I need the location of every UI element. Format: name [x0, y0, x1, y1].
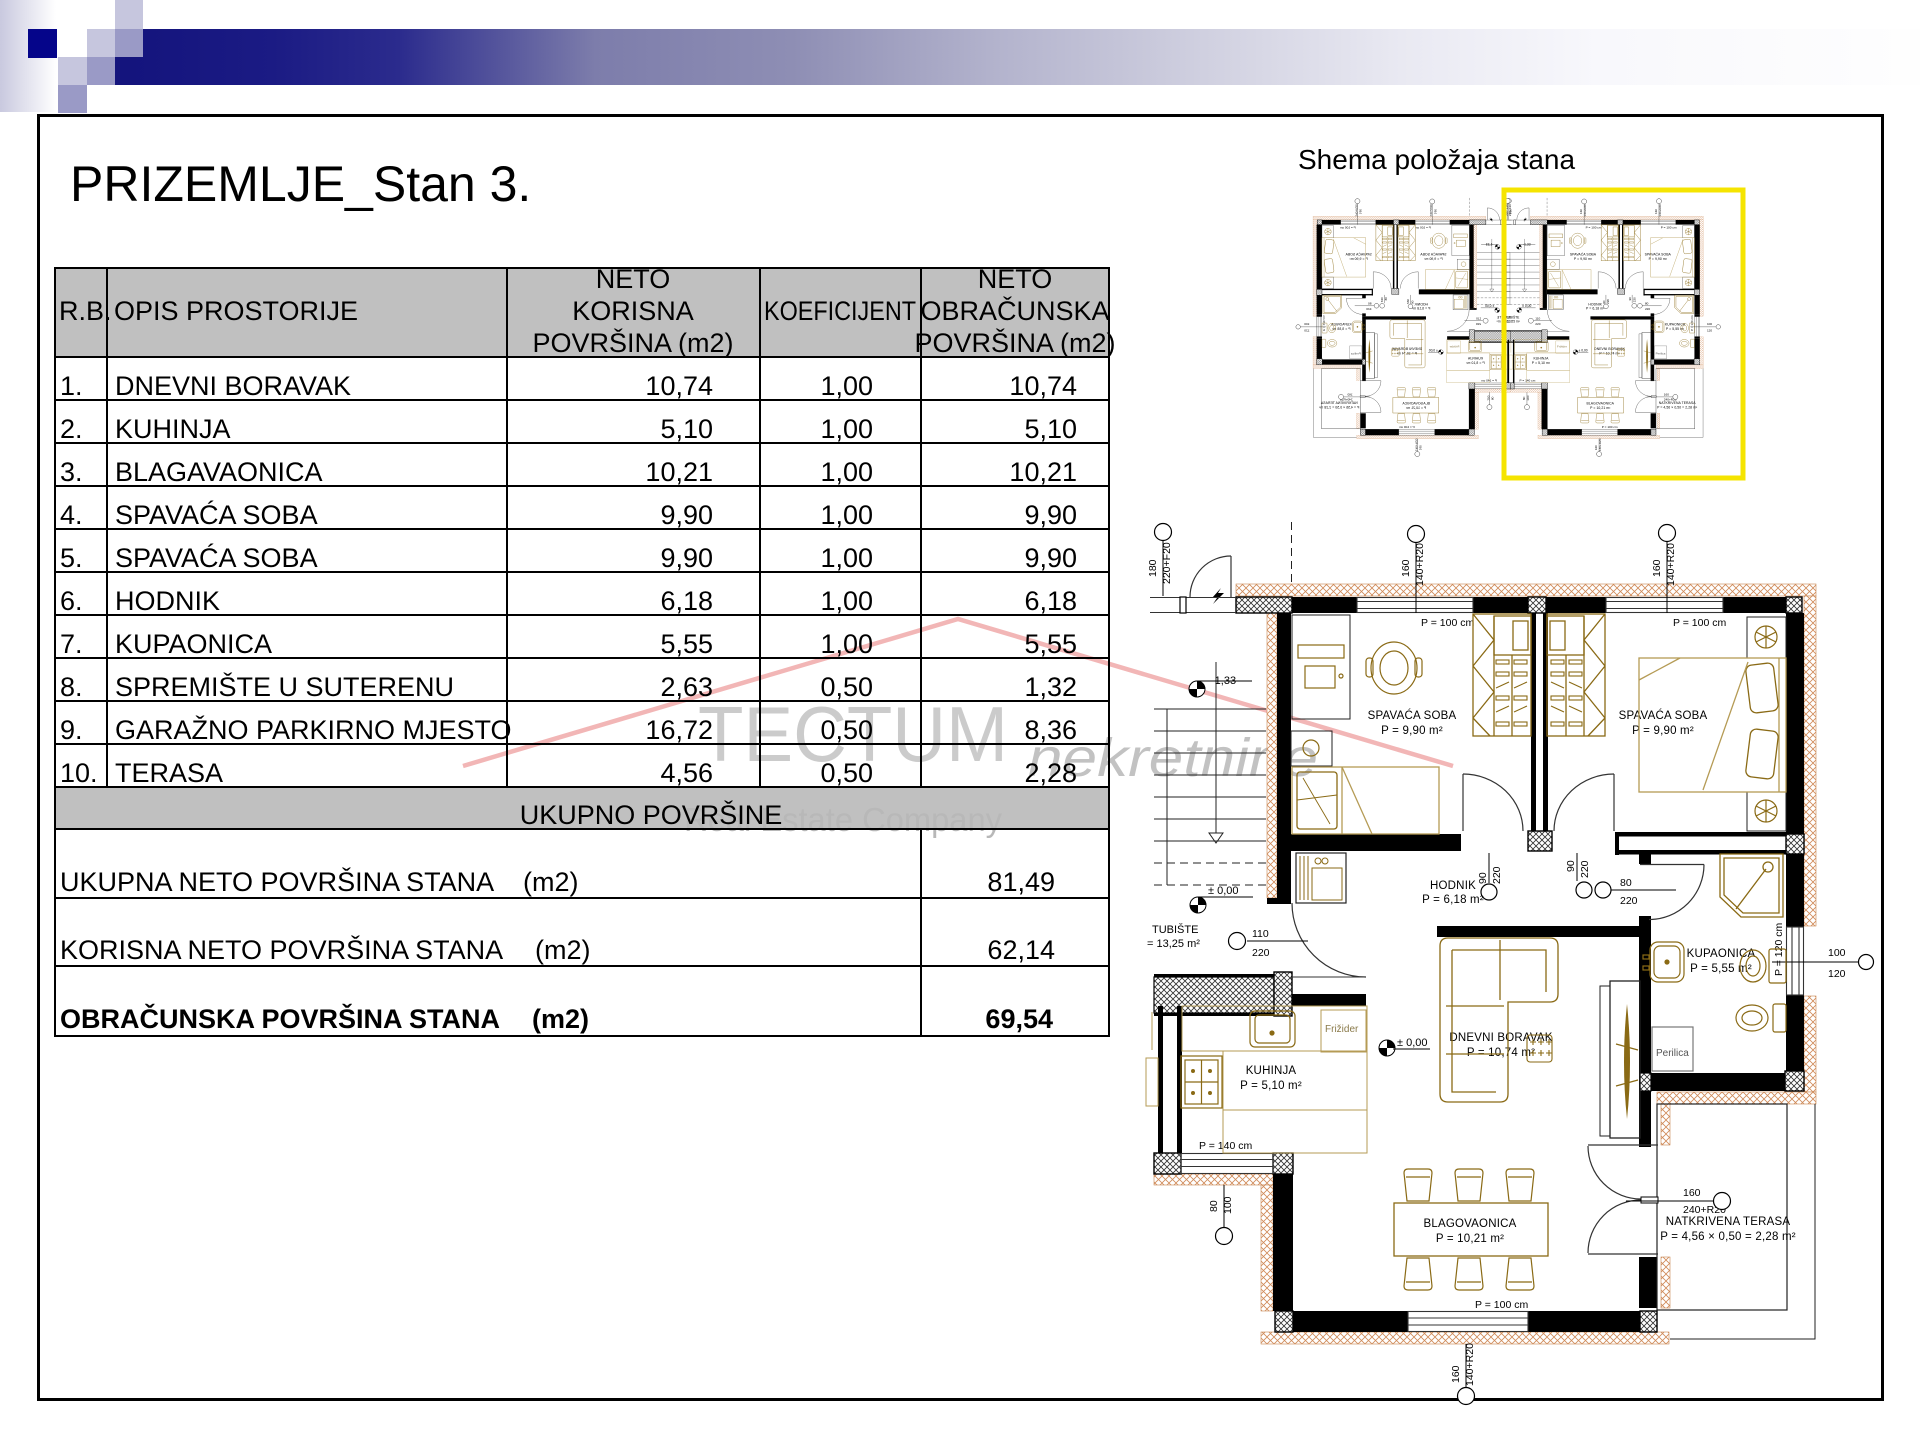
svg-text:SPAVAĆA SOBA: SPAVAĆA SOBA [1619, 709, 1708, 722]
svg-text:POVRŠINA (m2): POVRŠINA (m2) [532, 327, 733, 358]
svg-text:± 0,00: ± 0,00 [1397, 1037, 1428, 1049]
svg-text:NETO: NETO [596, 264, 671, 294]
svg-text:P = 5,55 m²: P = 5,55 m² [1690, 963, 1752, 975]
svg-text:P = 9,90 m²: P = 9,90 m² [1632, 725, 1694, 737]
svg-text:P = 5,10 m²: P = 5,10 m² [1240, 1080, 1302, 1092]
svg-text:TERASA: TERASA [115, 758, 223, 788]
svg-text:220: 220 [1620, 895, 1638, 907]
svg-text:90: 90 [1477, 872, 1489, 884]
svg-text:1,00: 1,00 [820, 414, 873, 444]
svg-text:5.: 5. [60, 543, 83, 573]
svg-text:100: 100 [1828, 947, 1846, 959]
svg-text:NATKRIVENA TERASA: NATKRIVENA TERASA [1666, 1216, 1791, 1228]
svg-text:Shema položaja stana: Shema položaja stana [1298, 144, 1576, 175]
svg-text:-1,33: -1,33 [1211, 675, 1236, 687]
svg-text:160: 160 [1651, 559, 1663, 577]
svg-text:9,90: 9,90 [1024, 543, 1077, 573]
svg-text:90: 90 [1565, 860, 1577, 872]
svg-text:220: 220 [1491, 866, 1503, 884]
svg-text:3.: 3. [60, 457, 83, 487]
svg-text:9,90: 9,90 [660, 500, 713, 530]
svg-text:± 0,00: ± 0,00 [1208, 885, 1239, 897]
svg-text:HODNIK: HODNIK [115, 586, 220, 616]
svg-text:9,90: 9,90 [1024, 500, 1077, 530]
svg-text:PRIZEMLJE_Stan 3.: PRIZEMLJE_Stan 3. [70, 156, 531, 212]
svg-text:6.: 6. [60, 586, 83, 616]
svg-text:0,50: 0,50 [820, 758, 873, 788]
svg-text:SPAVAĆA SOBA: SPAVAĆA SOBA [115, 542, 318, 573]
svg-text:80: 80 [1208, 1200, 1220, 1212]
svg-text:P = 6,18 m²: P = 6,18 m² [1422, 894, 1484, 906]
svg-text:10.: 10. [60, 758, 98, 788]
svg-text:TUBIŠTE: TUBIŠTE [1152, 923, 1198, 936]
svg-text:80: 80 [1620, 877, 1632, 889]
svg-text:P = 9,90 m²: P = 9,90 m² [1381, 725, 1443, 737]
svg-text:160: 160 [1400, 559, 1412, 577]
svg-text:R.B.: R.B. [59, 296, 112, 326]
svg-text:140+R20: 140+R20 [1464, 1343, 1476, 1386]
svg-text:SPAVAĆA SOBA: SPAVAĆA SOBA [1368, 709, 1457, 722]
svg-text:9.: 9. [60, 715, 83, 745]
svg-text:P = 100 cm: P = 100 cm [1475, 1299, 1528, 1311]
svg-text:0,50: 0,50 [820, 715, 873, 745]
svg-text:2,63: 2,63 [660, 672, 713, 702]
svg-text:6,18: 6,18 [660, 586, 713, 616]
svg-text:P = 100 cm: P = 100 cm [1673, 617, 1726, 629]
svg-text:5,10: 5,10 [1024, 414, 1077, 444]
svg-text:110: 110 [1252, 928, 1269, 940]
svg-text:KUHINJA: KUHINJA [115, 414, 231, 444]
svg-text:= 13,25 m²: = 13,25 m² [1147, 938, 1200, 950]
svg-text:7.: 7. [60, 629, 83, 659]
svg-text:KORISNA NETO POVRŠINA STANA: KORISNA NETO POVRŠINA STANA [60, 934, 503, 965]
svg-text:220: 220 [1252, 947, 1270, 959]
svg-text:KORISNA: KORISNA [572, 296, 694, 326]
svg-text:2.: 2. [60, 414, 83, 444]
svg-text:160: 160 [1683, 1187, 1701, 1199]
svg-text:P = 140 cm: P = 140 cm [1199, 1140, 1252, 1152]
svg-text:OBRAČUNSKA: OBRAČUNSKA [920, 295, 1109, 326]
svg-text:BLAGOVAONICA: BLAGOVAONICA [1424, 1218, 1517, 1230]
svg-text:P = 100 cm: P = 100 cm [1421, 617, 1474, 629]
svg-text:2,28: 2,28 [1024, 758, 1077, 788]
svg-text:UKUPNO POVRŠINE: UKUPNO POVRŠINE [520, 799, 783, 830]
svg-text:P = 4,56 × 0,50 = 2,28 m²: P = 4,56 × 0,50 = 2,28 m² [1660, 1231, 1796, 1243]
svg-text:BLAGAVAONICA: BLAGAVAONICA [115, 457, 323, 487]
svg-text:180: 180 [1147, 559, 1159, 577]
svg-text:1,00: 1,00 [820, 371, 873, 401]
svg-text:OPIS PROSTORIJE: OPIS PROSTORIJE [114, 296, 358, 326]
svg-text:GARAŽNO PARKIRNO MJESTO: GARAŽNO PARKIRNO MJESTO [115, 714, 512, 745]
svg-text:6,18: 6,18 [1024, 586, 1077, 616]
svg-text:5,55: 5,55 [1024, 629, 1077, 659]
svg-text:NETO: NETO [978, 264, 1053, 294]
svg-text:10,21: 10,21 [645, 457, 713, 487]
svg-text:10,74: 10,74 [645, 371, 713, 401]
svg-text:(m2): (m2) [532, 1004, 589, 1034]
svg-text:220: 220 [1579, 860, 1591, 878]
svg-text:SPREMIŠTE U SUTERENU: SPREMIŠTE U SUTERENU [115, 671, 454, 702]
svg-text:Frižider: Frižider [1325, 1024, 1359, 1035]
svg-text:POVRŠINA (m2): POVRŠINA (m2) [914, 327, 1115, 358]
svg-text:KUPAONICA: KUPAONICA [115, 629, 272, 659]
svg-text:16,72: 16,72 [645, 715, 713, 745]
svg-text:UKUPNA NETO POVRŠINA STANA: UKUPNA NETO POVRŠINA STANA [60, 866, 494, 897]
svg-text:1,00: 1,00 [820, 543, 873, 573]
svg-text:62,14: 62,14 [987, 935, 1055, 965]
svg-text:4.: 4. [60, 500, 83, 530]
svg-text:Perilica: Perilica [1656, 1048, 1689, 1059]
svg-text:DNEVNI BORAVAK: DNEVNI BORAVAK [115, 371, 351, 401]
svg-text:OBRAČUNSKA POVRŠINA STANA: OBRAČUNSKA POVRŠINA STANA [60, 1003, 500, 1034]
svg-text:10,21: 10,21 [1009, 457, 1077, 487]
svg-text:10,74: 10,74 [1009, 371, 1077, 401]
svg-text:4,56: 4,56 [660, 758, 713, 788]
svg-text:120: 120 [1828, 968, 1846, 980]
svg-text:8.: 8. [60, 672, 83, 702]
svg-text:KOEFICIJENT: KOEFICIJENT [764, 296, 916, 326]
svg-text:100: 100 [1222, 1196, 1234, 1214]
svg-text:KUHINJA: KUHINJA [1246, 1065, 1297, 1077]
svg-text:0,50: 0,50 [820, 672, 873, 702]
svg-text:P = 10,21 m²: P = 10,21 m² [1436, 1233, 1504, 1245]
svg-text:69,54: 69,54 [985, 1004, 1053, 1034]
svg-text:9,90: 9,90 [660, 543, 713, 573]
svg-text:DNEVNI BORAVAK: DNEVNI BORAVAK [1449, 1032, 1552, 1044]
svg-text:81,49: 81,49 [987, 867, 1055, 897]
svg-text:1,00: 1,00 [820, 629, 873, 659]
svg-text:1,00: 1,00 [820, 457, 873, 487]
svg-text:1,32: 1,32 [1024, 672, 1077, 702]
svg-text:140+R20: 140+R20 [1414, 543, 1426, 586]
svg-text:160: 160 [1450, 1365, 1462, 1383]
svg-text:8,36: 8,36 [1024, 715, 1077, 745]
svg-text:140+R20: 140+R20 [1665, 543, 1677, 586]
svg-text:1,00: 1,00 [820, 586, 873, 616]
svg-text:1,00: 1,00 [820, 500, 873, 530]
svg-text:5,55: 5,55 [660, 629, 713, 659]
svg-text:5,10: 5,10 [660, 414, 713, 444]
svg-text:HODNIK: HODNIK [1430, 880, 1476, 892]
svg-text:(m2): (m2) [523, 867, 579, 897]
svg-text:P = 10,74 m²: P = 10,74 m² [1467, 1047, 1535, 1059]
svg-text:220+F20: 220+F20 [1161, 542, 1173, 584]
svg-text:SPAVAĆA SOBA: SPAVAĆA SOBA [115, 499, 318, 530]
svg-text:1.: 1. [60, 371, 83, 401]
svg-text:(m2): (m2) [535, 935, 591, 965]
